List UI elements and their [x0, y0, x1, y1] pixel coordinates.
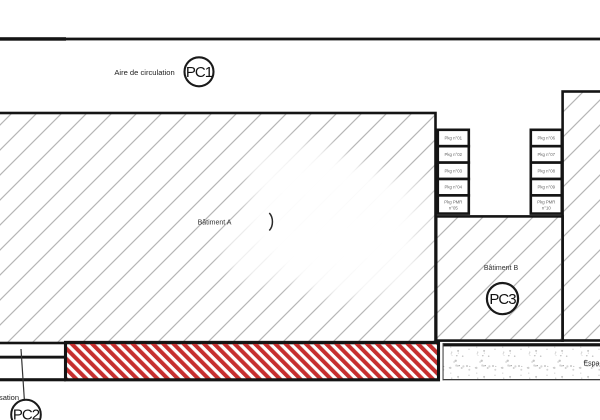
svg-text:PC2: PC2	[13, 407, 40, 420]
svg-text:Pkg n°01: Pkg n°01	[445, 136, 463, 141]
svg-text:Pkg n°07: Pkg n°07	[538, 152, 556, 157]
svg-text:PC3: PC3	[489, 291, 516, 308]
svg-text:Pkg PMR: Pkg PMR	[444, 200, 462, 205]
svg-text:Pkg n°09: Pkg n°09	[538, 185, 556, 190]
svg-text:Pkg PMR: Pkg PMR	[537, 200, 555, 205]
svg-text:sation: sation	[0, 393, 19, 402]
svg-text:Bâtiment A: Bâtiment A	[198, 219, 232, 226]
svg-text:Pkg n°02: Pkg n°02	[445, 152, 463, 157]
svg-text:Pkg n°08: Pkg n°08	[538, 168, 556, 173]
svg-text:Bâtiment B: Bâtiment B	[484, 265, 519, 272]
svg-text:Pkg n°06: Pkg n°06	[538, 136, 556, 141]
svg-text:PC1: PC1	[186, 64, 213, 81]
svg-text:n°05: n°05	[449, 206, 458, 211]
svg-text:n°10: n°10	[542, 206, 551, 211]
svg-text:Espace vert: Espace vert	[584, 361, 600, 368]
svg-text:Pkg n°04: Pkg n°04	[445, 185, 463, 190]
svg-text:Aire de circulation: Aire de circulation	[114, 68, 174, 77]
svg-text:Pkg n°03: Pkg n°03	[445, 168, 463, 173]
